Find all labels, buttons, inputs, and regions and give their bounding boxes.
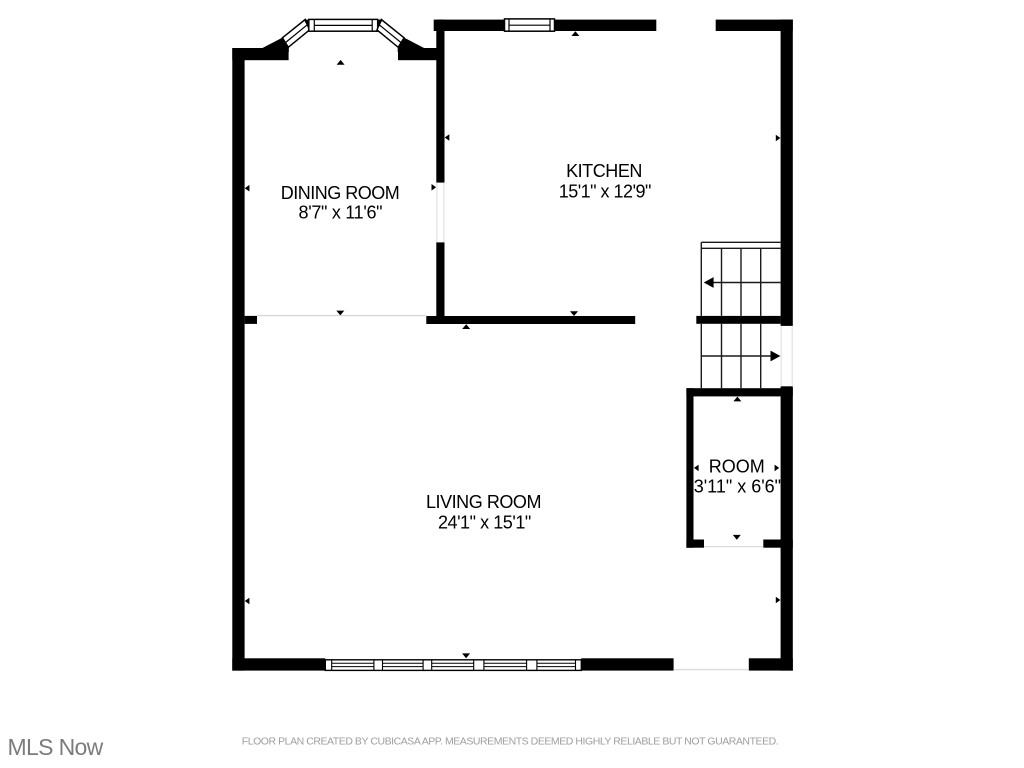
svg-text:DINING ROOM: DINING ROOM	[281, 183, 400, 203]
svg-text:24'1" x 15'1": 24'1" x 15'1"	[438, 512, 531, 532]
svg-text:MLS Now: MLS Now	[8, 734, 104, 760]
svg-text:8'7" x 11'6": 8'7" x 11'6"	[299, 202, 383, 222]
svg-text:FLOOR PLAN CREATED BY CUBICASA: FLOOR PLAN CREATED BY CUBICASA APP. MEAS…	[242, 735, 779, 747]
svg-text:KITCHEN: KITCHEN	[566, 161, 642, 181]
svg-text:3'11" x 6'6": 3'11" x 6'6"	[694, 477, 781, 497]
svg-text:15'1" x 12'9": 15'1" x 12'9"	[559, 181, 651, 201]
svg-text:ROOM: ROOM	[709, 457, 765, 477]
svg-text:LIVING ROOM: LIVING ROOM	[426, 492, 541, 512]
